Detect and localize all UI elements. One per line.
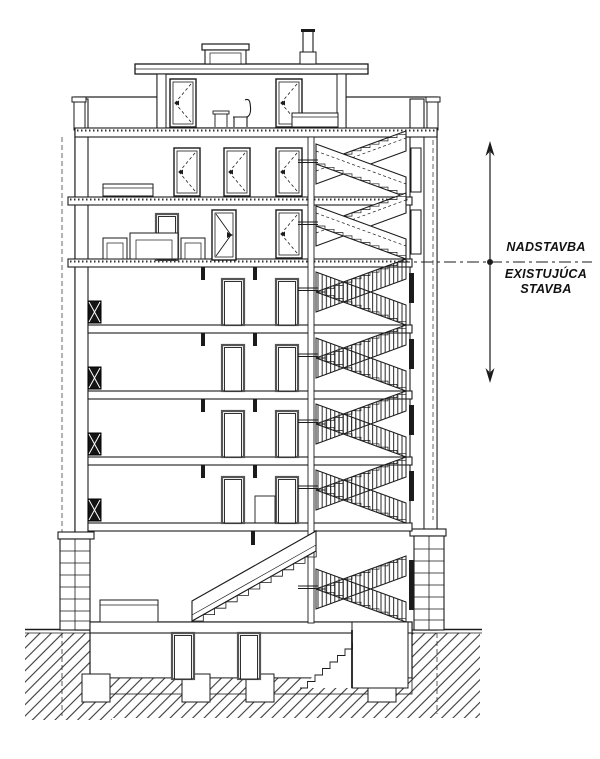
base-pillar-left [58,532,94,630]
stair-pit [352,622,408,688]
parapet-right [427,102,438,130]
sofa [130,233,178,259]
chimney [300,29,316,64]
slab [88,325,412,333]
architectural-section-drawing: NADSTAVBA EXISTUJÚCA STAVBA [0,0,600,759]
label-stavba: STAVBA [520,282,571,296]
label-nadstavba: NADSTAVBA [506,240,585,254]
slab [88,523,412,531]
roof-skylight [202,44,249,64]
parapet-cap-left [72,97,86,102]
parapet-left [74,102,85,130]
table [213,111,229,114]
cabinet [100,600,158,622]
right-cladding [424,130,437,533]
parapet-cap-right [426,97,440,102]
foundation-block [82,674,110,702]
armchair [103,238,127,259]
section-svg: NADSTAVBA EXISTUJÚCA STAVBA [0,0,600,759]
label-existujuca: EXISTUJÚCA [505,266,587,281]
base-pillar-right [410,529,446,630]
v-door [212,210,236,260]
cabinet [292,113,338,127]
bed [103,184,153,196]
armchair [181,238,205,259]
penthouse-door-left [170,79,196,127]
slab [68,197,412,205]
penthouse [135,29,368,128]
earth-right [412,633,480,718]
slab [88,457,412,465]
slab [68,259,412,267]
left-wall [75,99,88,538]
slab-terrace-level [75,128,437,137]
penthouse-wall-left [157,74,166,128]
slab [88,391,412,399]
